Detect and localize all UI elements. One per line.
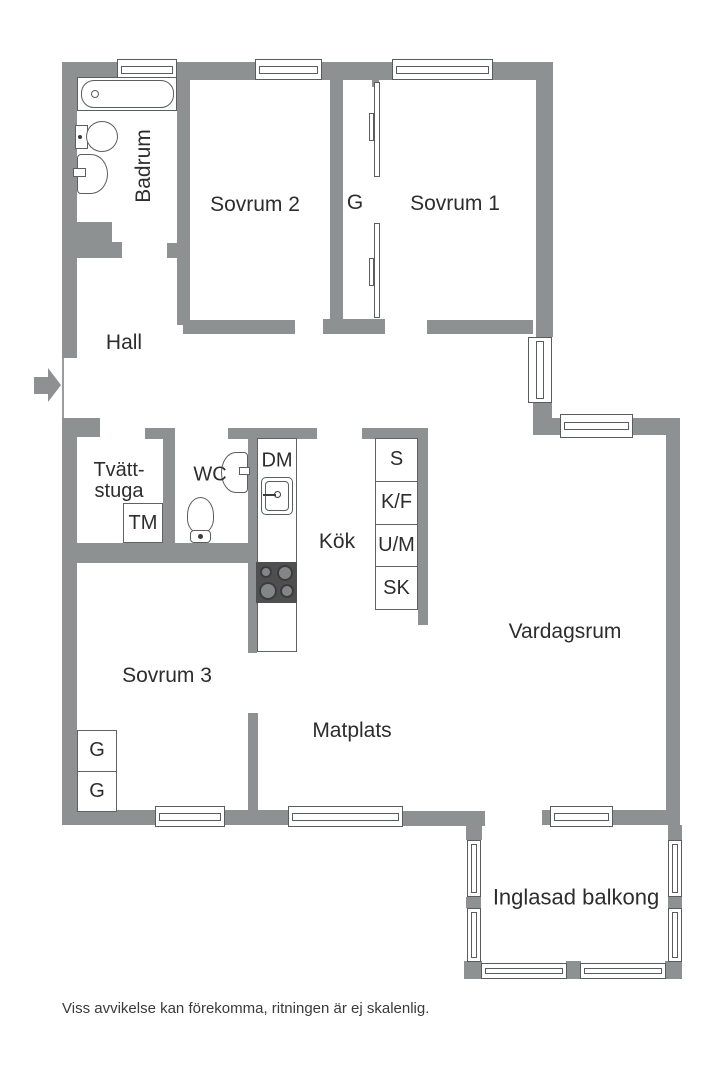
balcony-post — [665, 961, 682, 979]
wall — [163, 438, 175, 545]
cabinet-s: S — [376, 439, 417, 481]
cabinet-kf: K/F — [376, 481, 417, 524]
entry-threshold-line — [62, 358, 64, 418]
kitchen-sink-icon — [261, 477, 293, 515]
balcony-post — [466, 897, 481, 908]
balcony-post — [566, 961, 581, 979]
balcony-glazing — [481, 963, 567, 979]
balcony-glazing — [467, 840, 481, 897]
entry-arrow-icon — [34, 377, 48, 394]
wall — [62, 810, 155, 825]
wall — [62, 62, 77, 358]
balcony-post — [464, 961, 482, 979]
sink-faucet-icon — [239, 467, 250, 475]
tvattstuga-line2: stuga — [93, 481, 144, 502]
stove-icon — [256, 562, 297, 603]
balcony-glazing — [668, 840, 682, 897]
toilet-icon — [86, 121, 118, 152]
room-label-vardagsrum: Vardagsrum — [509, 621, 622, 643]
room-label-matplats: Matplats — [312, 720, 391, 742]
room-label-sovrum3: Sovrum 3 — [122, 665, 212, 687]
disclaimer-text: Viss avvikelse kan förekomma, ritningen … — [62, 1000, 429, 1017]
wall — [183, 320, 295, 334]
wall — [533, 402, 552, 418]
wall — [666, 435, 680, 825]
room-label-badrum: Badrum — [133, 129, 155, 203]
balcony-post — [668, 897, 682, 908]
toilet-icon — [187, 497, 214, 533]
wall — [323, 319, 385, 334]
wall — [62, 418, 77, 825]
balcony-post — [668, 825, 682, 840]
room-label-garderob: G — [347, 192, 363, 214]
bathtub-icon — [77, 77, 177, 111]
wall — [536, 62, 553, 337]
window — [155, 806, 225, 827]
room-label-sovrum2: Sovrum 2 — [210, 194, 300, 216]
wall — [177, 80, 190, 325]
cabinet-sk: SK — [376, 566, 417, 609]
shaft — [77, 222, 112, 258]
room-label-sovrum1: Sovrum 1 — [410, 193, 500, 215]
entry-arrow-icon — [48, 368, 61, 402]
wall — [632, 418, 680, 435]
closet-column: G G — [77, 730, 117, 812]
appliance-label-dm: DM — [261, 451, 292, 472]
tvattstuga-line1: Tvätt- — [93, 460, 144, 481]
washing-machine: TM — [123, 503, 163, 543]
window — [392, 59, 493, 80]
window — [550, 806, 613, 827]
room-label-wc: WC — [193, 465, 226, 486]
wall — [533, 418, 561, 435]
balcony-glazing — [467, 908, 481, 962]
toilet-icon — [190, 530, 211, 543]
closet-g2: G — [78, 771, 116, 812]
wall — [77, 418, 100, 437]
wall — [62, 543, 250, 563]
window — [255, 59, 322, 80]
room-label-balkong: Inglasad balkong — [493, 885, 659, 908]
balcony-glazing — [580, 963, 666, 979]
closet-g1: G — [78, 731, 116, 771]
closet-sliding-door — [369, 258, 374, 286]
closet-sliding-door — [374, 82, 380, 177]
wall — [418, 428, 428, 625]
sink-faucet-icon — [73, 168, 86, 177]
closet-sliding-door — [369, 113, 374, 141]
cabinet-um: U/M — [376, 524, 417, 567]
cabinet-column: S K/F U/M SK — [375, 438, 418, 610]
wall — [167, 243, 177, 258]
balcony-glazing — [668, 908, 682, 962]
wall — [248, 713, 258, 813]
wall — [403, 811, 485, 826]
wall — [427, 320, 533, 334]
window — [288, 806, 403, 827]
room-label-hall: Hall — [106, 332, 142, 354]
closet-sliding-door — [374, 223, 380, 318]
shaft — [112, 242, 122, 258]
window — [528, 337, 552, 403]
room-label-tvattstuga: Tvätt- stuga — [93, 460, 144, 502]
floor-plan: S K/F U/M SK TM G G Badrum Sovrum 2 G So… — [0, 0, 720, 1080]
balcony-post — [466, 825, 482, 840]
washing-machine-label: TM — [129, 512, 158, 535]
window — [560, 414, 633, 438]
wall — [330, 80, 343, 320]
room-label-kok: Kök — [319, 531, 355, 553]
